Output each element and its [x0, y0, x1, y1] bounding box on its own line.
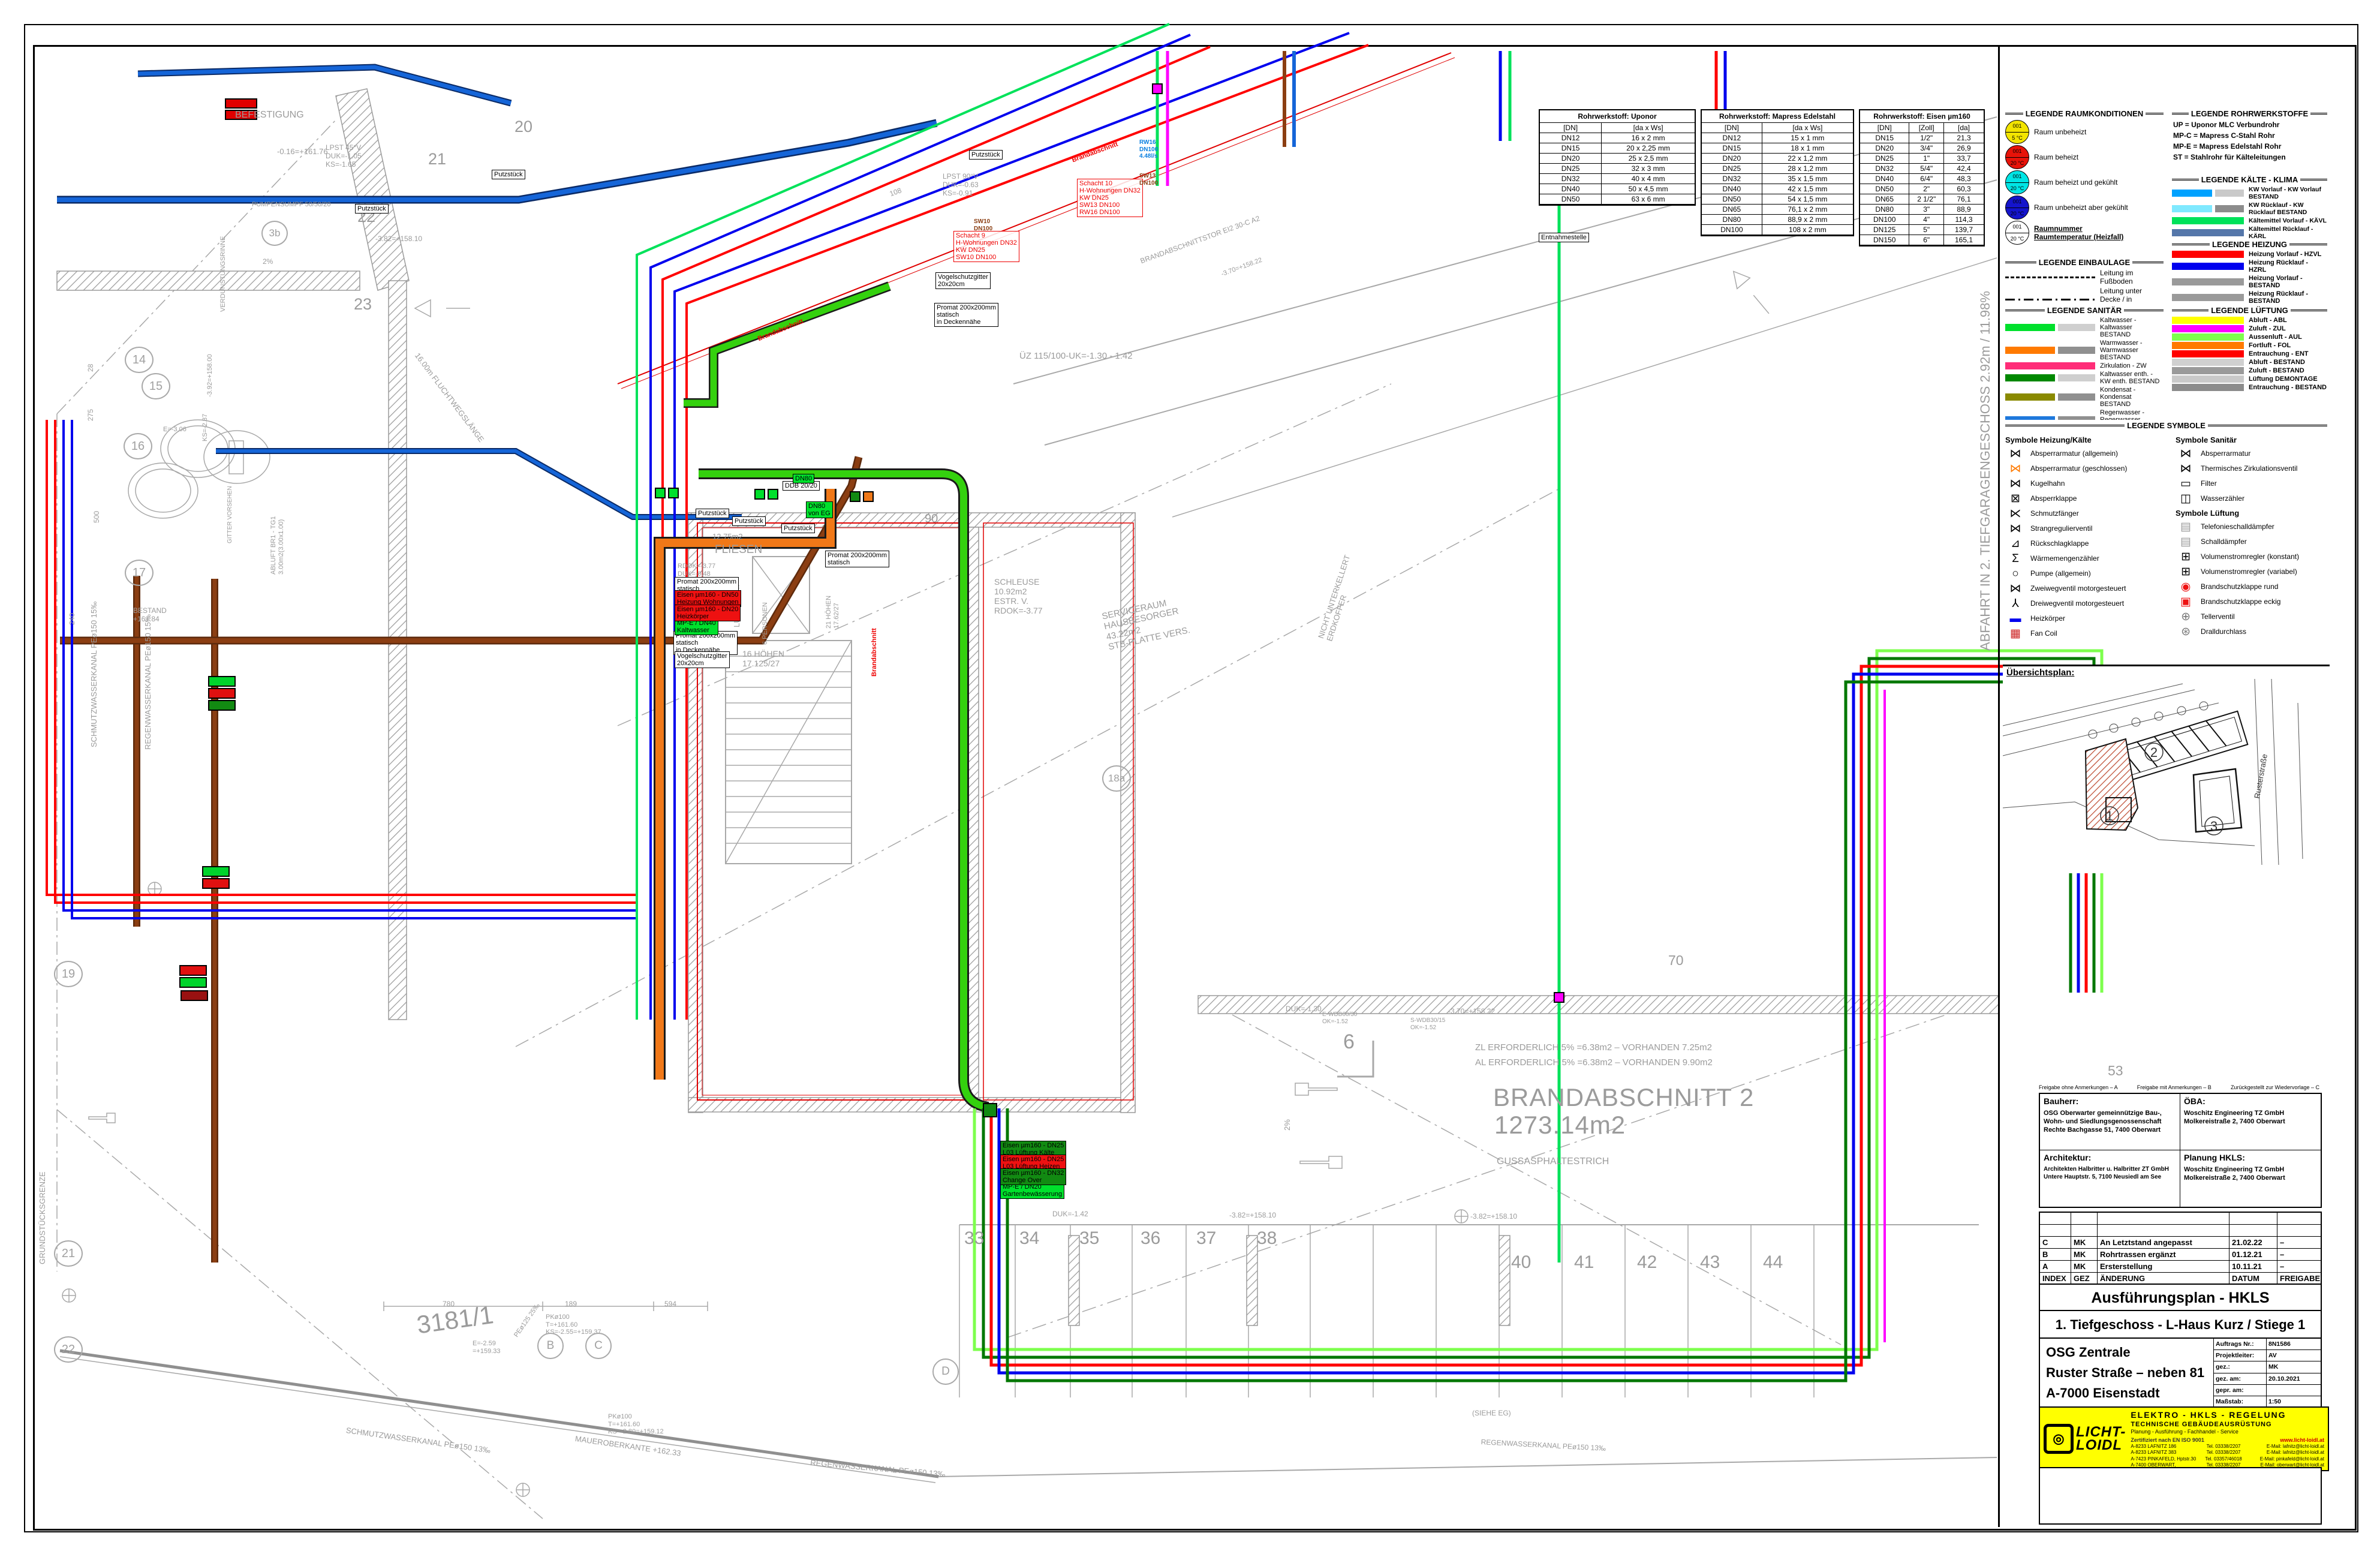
table-row: DN3235 x 1,5 mm — [1702, 174, 1853, 184]
grid-bubble-14: 14 — [125, 347, 154, 373]
col-da: [da] — [1944, 123, 1984, 133]
col-da: [da x Ws] — [1762, 123, 1853, 133]
parties-block: Bauherr:OSG Oberwarter gemeinnützige Bau… — [2039, 1093, 2322, 1208]
legend-header: LEGENDE SANITÄR — [2003, 306, 2166, 315]
symbol-icon: ⊿ — [2006, 537, 2024, 550]
grid-bubble-19: 19 — [54, 961, 83, 987]
table-row: DN2025 x 2,5 mm — [1540, 154, 1695, 164]
table-row: DN3240 x 4 mm — [1540, 174, 1695, 184]
symbol-item: ⊠Absperrklappe — [2006, 492, 2164, 505]
site-map: 1 2 3 Rusterstraße — [2003, 679, 2330, 865]
legend-item: Fortluft - FOL — [2172, 342, 2327, 349]
dim-594: 594 — [664, 1300, 676, 1309]
label-gitter: GITTER VORSEHEN — [227, 486, 234, 543]
symbol-icon: ◫ — [2177, 492, 2195, 505]
label-bestand: BESTAND +161.84 — [133, 607, 167, 624]
label-abfahrt: ABFAHRT IN 2. TIEFGARAGENGESCHOSS 2.92m … — [1978, 291, 1993, 651]
table-title: Rohrwerkstoff: Uponor — [1540, 110, 1695, 123]
legend-header: LEGENDE LÜFTUNG — [2170, 306, 2330, 315]
symbol-item: ▤Telefonieschalldämpfer — [2177, 520, 2326, 533]
dim-275: 275 — [87, 409, 95, 421]
symbol-icon: ⊞ — [2177, 550, 2195, 563]
symbol-icon: ▤ — [2177, 535, 2195, 548]
legend-item: Aussenluft - AUL — [2172, 333, 2327, 341]
legend-heizung: LEGENDE HEIZUNG Heizung Vorlauf - HZVL H… — [2170, 239, 2330, 314]
symbol-item: ▬Heizkörper — [2006, 612, 2164, 625]
putzstueck-box: Putzstück — [969, 150, 1003, 160]
symbol-item: ▭Filter — [2177, 477, 2326, 490]
putzstueck-box: Putzstück — [696, 509, 729, 518]
legend-item: 00120 °C Raum beheizt — [2005, 145, 2164, 169]
label-brandabschnitt: BRANDABSCHNITT 2 — [1493, 1083, 1754, 1112]
grid-23: 23 — [354, 295, 372, 314]
label-zl: ZL ERFORDERLICH 5% =6.38m2 – VORHANDEN 7… — [1475, 1042, 1712, 1053]
table-row: DN652 1/2"76,1 — [1860, 194, 1984, 205]
room-number-icon: 00120 °C — [2005, 221, 2029, 245]
symbol-item: ⋉Schmutzfänger — [2006, 507, 2164, 520]
map-building-2: 2 — [2150, 745, 2158, 760]
table-row: DN1506"165,1 — [1860, 235, 1984, 245]
room-condition-icon: 00120 °C — [2005, 170, 2029, 194]
label-uz: ÜZ 115/100-UK=-1.30 - 1.42 — [1019, 351, 1133, 361]
legend-item: Abluft - ABL — [2172, 317, 2327, 324]
label-swdb: S-WDB30/15 OK=-1.52 — [1410, 1017, 1445, 1031]
symbol-icon: ▬ — [2006, 612, 2024, 625]
symbol-icon: ⋈ — [2006, 522, 2024, 535]
revision-row: CMKAn Letztstand angepasst21.02.22– — [2040, 1237, 2321, 1249]
table-row: DN1255"139,7 — [1860, 225, 1984, 235]
dim-28: 28 — [87, 364, 95, 372]
legend-item: UP = Uponor MLC Verbundrohr — [2173, 121, 2326, 129]
symbol-icon: ⋈ — [2006, 447, 2024, 460]
table-title: Rohrwerkstoff: Eisen µm160 — [1860, 110, 1984, 123]
table-uponor: Rohrwerkstoff: Uponor [DN][da x Ws] DN12… — [1539, 109, 1696, 206]
label-fliesen: FLIESEN — [715, 543, 762, 557]
legend-header: LEGENDE RAUMKONDITIONEN — [2003, 109, 2166, 118]
label-lpst45: LPST 45°V DUK=-1.05 KS=-1.65 — [326, 144, 362, 169]
stall-42: 42 — [1637, 1252, 1657, 1273]
company-logo: ◎ LICHT-LOIDL — [2044, 1410, 2126, 1468]
label-level: -3.70=+158.22 — [1448, 1008, 1495, 1016]
grid-20: 20 — [514, 118, 532, 136]
room-condition-icon: 0015 °C — [2005, 120, 2029, 144]
table-row: DN8088,9 x 2 mm — [1702, 215, 1853, 225]
company-tel: Tel. 03357/46018 — [2197, 1456, 2250, 1462]
symbole-heizung-kaelte: Symbole Heizung/Kälte ⋈Absperrarmatur (a… — [2003, 432, 2167, 642]
legend-item: Zirkulation - ZW — [2005, 362, 2164, 369]
legend-item: Leitung im Fußboden — [2005, 269, 2164, 285]
symbol-icon: ⅄ — [2006, 597, 2024, 610]
project-field-row: gez. am:20.10.2021 — [2214, 1373, 2321, 1385]
legend-item: Heizung Vorlauf - HZVL — [2172, 251, 2327, 258]
grid-bubble-21: 21 — [54, 1240, 83, 1267]
legend-item: Entrauchung - ENT — [2172, 350, 2327, 357]
symbol-icon: ◉ — [2177, 580, 2195, 593]
legend-item: Kondensat - Kondensat BESTAND — [2005, 386, 2164, 408]
table-row: DN6576,1 x 2 mm — [1702, 205, 1853, 215]
project-field-row: Projektleiter:AV — [2214, 1350, 2321, 1361]
promat-box: Promat 200x200mm statisch — [825, 551, 889, 567]
table-row: DN4042 x 1,5 mm — [1702, 184, 1853, 194]
table-row: DN2528 x 1,2 mm — [1702, 164, 1853, 174]
putzstueck-box: Putzstück — [781, 524, 815, 533]
symbol-icon: ⊛ — [2177, 625, 2195, 638]
heizkoerper-dn20-box: Eisen µm160 - DN20 Heizkörper — [675, 605, 741, 621]
symbol-icon: Σ — [2006, 552, 2024, 565]
legend-item: Lüftung DEMONTAGE — [2172, 375, 2327, 383]
dim-500: 500 — [93, 511, 101, 523]
grid-53: 53 — [2108, 1063, 2123, 1078]
stall-38: 38 — [1257, 1228, 1277, 1249]
col-dn: [DN] — [1702, 123, 1762, 133]
symbol-icon: ○ — [2006, 567, 2024, 580]
company-line3: Planung - Ausführung - Fachhandel - Serv… — [2131, 1429, 2324, 1435]
symbol-icon: ▦ — [2006, 627, 2024, 640]
legend-header: LEGENDE KÄLTE - KLIMA — [2170, 175, 2330, 184]
schacht9-box: Schacht 9 H-Wohnungen DN32 KW DN25 SW10 … — [953, 231, 1019, 262]
table-row: DN5054 x 1,5 mm — [1702, 194, 1853, 205]
col-zoll: [Zoll] — [1909, 123, 1944, 133]
revision-row: INDEXGEZÄNDERUNGDATUMFREIGABE — [2040, 1273, 2321, 1285]
uebersichtsplan-title: Übersichtsplan: — [2006, 668, 2326, 678]
architektur-cell: Architektur:Architekten Halbritter u. Ha… — [2040, 1150, 2180, 1207]
symbol-icon: ⋈ — [2177, 462, 2195, 475]
project-field-row: gepr. am: — [2214, 1385, 2321, 1396]
symbol-item: ⋈Strangregulierventil — [2006, 522, 2164, 535]
label-personen: 6 PERSONEN — [762, 602, 769, 645]
legend-item: Heizung Rücklauf - HZRL — [2172, 259, 2327, 273]
plot-info-box — [2039, 1467, 2322, 1525]
rw16-label: RW16 DN100 4.48l/s — [1139, 139, 1158, 160]
logo-ring-icon: ◎ — [2044, 1424, 2074, 1454]
label-lpst90: LPST 90°V DUK=-0.63 KS=-0.91 — [943, 173, 979, 197]
table-row: DN502"60,3 — [1860, 184, 1984, 194]
company-cert: Zertifiziert nach EN ISO 9001 — [2131, 1437, 2204, 1444]
putzstueck-box: Putzstück — [492, 170, 525, 179]
bauherr-cell: Bauherr:OSG Oberwarter gemeinnützige Bau… — [2040, 1094, 2180, 1150]
dim-2pct: 2% — [263, 258, 273, 266]
symbol-item: ΣWärmemengenzähler — [2006, 552, 2164, 565]
company-address: A-7423 PINKAFELD, Hptstr.30 — [2131, 1456, 2197, 1462]
label-e306: E=-3.06 — [163, 426, 186, 434]
label-level: -0.16=+161.76 — [277, 148, 328, 157]
legend-item: Kältemittel Rücklauf - KÄRL — [2172, 226, 2327, 240]
promat-deck-box: Promat 200x200mm statisch in Deckennähe — [934, 303, 998, 327]
label-area: 12.75m2 — [712, 533, 743, 542]
legend-rohrwerkstoffe: LEGENDE ROHRWERKSTOFFE UP = Uponor MLC V… — [2170, 108, 2330, 164]
label-e259: E=-2.59 =+159.33 — [473, 1340, 501, 1355]
symbol-item: ⊿Rückschlagklappe — [2006, 537, 2164, 550]
grid-bubble-C: C — [585, 1333, 612, 1359]
legend-header: LEGENDE SYMBOLE — [2003, 421, 2330, 430]
table-row: DN251"33,7 — [1860, 154, 1984, 164]
company-tel: Tel. 03338/2207 — [2197, 1450, 2250, 1456]
table-row: DN151/2"21,3 — [1860, 133, 1984, 143]
table-row: DN406/4"48,3 — [1860, 174, 1984, 184]
grid-bubble-B: B — [537, 1333, 564, 1359]
symbol-item: ▤Schalldämpfer — [2177, 535, 2326, 548]
legend-item: Zuluft - ZUL — [2172, 325, 2327, 332]
table-row: DN5063 x 6 mm — [1540, 194, 1695, 205]
freigabe-c: Zurückgestellt zur Wiedervorlage – C — [2231, 1084, 2319, 1090]
table-row: DN100108 x 2 mm — [1702, 225, 1853, 235]
company-email: E-Mail: lafnitz@licht-loidl.at — [2250, 1444, 2324, 1450]
legend-item: KW Rücklauf - KW Rücklauf BESTAND — [2172, 202, 2327, 216]
freigabe-header: Freigabe ohne Anmerkungen – A Freigabe m… — [2039, 1084, 2319, 1090]
symbols-subtitle: Symbole Lüftung — [2176, 509, 2327, 518]
label-befestigung: BEFESTIGUNG — [235, 110, 304, 121]
label-duk130: DUK=-1.30 — [1286, 1005, 1322, 1014]
symbol-icon: ▣ — [2177, 595, 2195, 608]
revision-row — [2040, 1213, 2321, 1225]
fitting-markers — [180, 84, 2098, 1117]
symbol-item: ⊞Volumenstromregler (variabel) — [2177, 565, 2326, 578]
legend-item: Heizung Vorlauf - BESTAND — [2172, 275, 2327, 289]
symbol-item: ⊛Dralldurchlass — [2177, 625, 2326, 638]
table-eisen: Rohrwerkstoff: Eisen µm160 [DN][Zoll][da… — [1859, 109, 1985, 247]
freigabe-b: Freigabe mit Anmerkungen – B — [2137, 1084, 2211, 1090]
symbol-item: ▣Brandschutzklappe eckig — [2177, 595, 2326, 608]
company-block: ◎ LICHT-LOIDL ELEKTRO - HKLS - REGELUNG … — [2039, 1406, 2329, 1471]
company-email: E-Mail: pinkafeld@licht-loidl.at — [2250, 1456, 2324, 1462]
legend-header: LEGENDE ROHRWERKSTOFFE — [2170, 109, 2330, 118]
oeba-cell: ÖBA:Woschitz Engineering TZ GmbH Molkere… — [2180, 1094, 2321, 1150]
legend-item: 00120 °C Raum unbeheizt aber gekühlt — [2005, 196, 2164, 220]
stall-36: 36 — [1141, 1228, 1160, 1249]
legend-item: 0015 °C Raum unbeheizt — [2005, 120, 2164, 144]
stall-33: 33 — [964, 1228, 984, 1249]
table-row: DN203/4"26,9 — [1860, 143, 1984, 154]
map-building-1: 1 — [2106, 808, 2113, 823]
grid-bubble-15: 15 — [142, 373, 170, 399]
dn80-von-eg-box: DN80 von EG — [806, 501, 833, 518]
legend-item: Kaltwasser - Kaltwasser BESTAND — [2005, 317, 2164, 338]
company-address: A-8233 LAFNITZ 383 — [2131, 1450, 2197, 1456]
legend-item: Kaltwasser enth. - KW enth. BESTAND — [2005, 371, 2164, 385]
dim-240: 240 — [68, 613, 77, 625]
symbol-icon: ⊞ — [2177, 565, 2195, 578]
table-row: DN1216 x 2 mm — [1540, 133, 1695, 143]
legend-item: Zuluft - BESTAND — [2172, 367, 2327, 374]
symbole-sanitaer-lueftung: Symbole Sanitär ⋈Absperrarmatur ⋈Thermis… — [2173, 432, 2330, 642]
table-row: DN1004"114,3 — [1860, 215, 1984, 225]
symbol-item: ⊕Tellerventil — [2177, 610, 2326, 623]
col-dn: [DN] — [1540, 123, 1602, 133]
legend-item: Warmwasser - Warmwasser BESTAND — [2005, 339, 2164, 361]
sw10-label: SW10 DN100 — [974, 218, 992, 232]
legend-item: MP-E = Mapress Edelstahl Rohr — [2173, 142, 2326, 151]
legend-item: Kältemittel Vorlauf - KÄVL — [2172, 217, 2327, 224]
revision-table: CMKAn Letztstand angepasst21.02.22– BMKR… — [2039, 1212, 2322, 1286]
symbol-icon: ⊠ — [2006, 492, 2024, 505]
map-building-3: 3 — [2210, 819, 2217, 834]
legend-header: LEGENDE EINBAULAGE — [2003, 258, 2166, 267]
company-tel: Tel. 03338/2207 — [2197, 1444, 2250, 1450]
grid-21: 21 — [428, 150, 446, 169]
dim-2pct: 2% — [1283, 1119, 1292, 1131]
legend-item: ST = Stahlrohr für Kälteleitungen — [2173, 153, 2326, 161]
legend-raumkonditionen: LEGENDE RAUMKONDITIONEN 0015 °C Raum unb… — [2003, 108, 2166, 246]
symbol-icon: ⊕ — [2177, 610, 2195, 623]
putzstueck-box: Putzstück — [732, 516, 766, 526]
project-field-row: gez.:MK — [2214, 1361, 2321, 1373]
change-over-box: Eisen µm160 - DN32 Change Over — [1000, 1168, 1066, 1185]
grid-bubble-22: 22 — [54, 1336, 83, 1363]
symbol-item: ⅄Dreiwegventil motorgesteuert — [2006, 597, 2164, 610]
grid-70: 70 — [1668, 952, 1684, 968]
label-regenwasserkanal: REGENWASSERKANAL PEø150 15‰ — [144, 614, 153, 750]
legend-callout: 00120 °C RaumnummerRaumtemperatur (Heizf… — [2005, 221, 2164, 245]
label-level: -3.82=+158.10 — [1229, 1212, 1276, 1220]
sw13-label: SW13 DN100 — [1139, 173, 1158, 187]
label-duk142: DUK=-1.42 — [1052, 1210, 1088, 1219]
label-siehe-eg: (SIEHE EG) — [1472, 1409, 1511, 1418]
label-m392: -3.92=+158.00 — [206, 354, 214, 397]
freigabe-a: Freigabe ohne Anmerkungen – A — [2039, 1084, 2118, 1090]
label-gussasphalt: GUSSASPHALTESTRICH — [1497, 1156, 1609, 1167]
legend-item: KW Vorlauf - KW Vorlauf BESTAND — [2172, 186, 2327, 200]
revision-row: AMKErsterstellung10.11.21– — [2040, 1261, 2321, 1273]
vogelschutz-box: Vogelschutzgitter 20x20cm — [675, 651, 730, 668]
plan-type-band: Ausführungsplan - HKLS — [2039, 1284, 2322, 1312]
label-pumpensumpf: PUMPENSUMPF 50/50/20 — [252, 201, 330, 209]
symbol-icon: ⋈ — [2177, 447, 2195, 460]
label-schleuse: SCHLEUSE 10.92m2 ESTR. V. RDOK=-3.77 — [994, 577, 1043, 615]
legend-item: Heizung Rücklauf - BESTAND — [2172, 290, 2327, 305]
company-line2: TECHNISCHE GEBÄUDEAUSRÜSTUNG — [2131, 1421, 2324, 1429]
label-pk2: PKø100 T=+161.60 KS=-2.80=+159.12 — [608, 1413, 664, 1436]
symbol-item: ○Pumpe (allgemein) — [2006, 567, 2164, 580]
room-condition-icon: 00120 °C — [2005, 145, 2029, 169]
label-ks287: KS=-2.87 — [201, 414, 209, 441]
schacht10-box: Schacht 10 H-Wohnungen DN32 KW DN25 SW13… — [1077, 179, 1143, 217]
grid-bubble-17: 17 — [125, 560, 154, 586]
symbol-item: ◉Brandschutzklappe rund — [2177, 580, 2326, 593]
table-row: DN1518 x 1 mm — [1702, 143, 1853, 154]
planung-cell: Planung HKLS:Woschitz Engineering TZ Gmb… — [2180, 1150, 2321, 1207]
grid-bubble-16: 16 — [124, 433, 152, 459]
legend-header: LEGENDE HEIZUNG — [2170, 240, 2330, 249]
symbol-icon: ⋈ — [2006, 462, 2024, 475]
project-address: OSG Zentrale Ruster Straße – neben 81 A-… — [2040, 1339, 2213, 1408]
brandabschnitt-red-label: Brandabschnitt — [871, 628, 878, 677]
room-condition-icon: 00120 °C — [2005, 196, 2029, 220]
project-field-row: Auftrags Nr.:8N1586 — [2214, 1339, 2321, 1350]
entnahmestelle-box: Entnahmestelle — [1539, 233, 1589, 242]
label-schmutzwasserkanal: SCHMUTZWASSERKANAL PEø150 15‰ — [90, 602, 99, 747]
legend-divider — [1998, 45, 2000, 1527]
label-level: -3.82=+158.10 — [1470, 1213, 1517, 1221]
map-street-label: Rusterstraße — [2252, 753, 2269, 799]
table-row: DN1520 x 2,25 mm — [1540, 143, 1695, 154]
table-mapress: Rohrwerkstoff: Mapress Edelstahl [DN][da… — [1701, 109, 1854, 236]
symbol-item: ⋈Absperrarmatur (allgemein) — [2006, 447, 2164, 460]
label-hoehen16: 16 HÖHEN 17.125/27 — [742, 649, 784, 668]
stall-41: 41 — [1574, 1252, 1594, 1273]
symbol-icon: ⋈ — [2006, 582, 2024, 595]
stall-37: 37 — [1196, 1228, 1216, 1249]
label-brandabschnitt-area: 1273.14m2 — [1494, 1111, 1626, 1140]
table-row: DN2532 x 3 mm — [1540, 164, 1695, 174]
table-row: DN803"88,9 — [1860, 205, 1984, 215]
table-row: DN325/4"42,4 — [1860, 164, 1984, 174]
vogelschutz-box: Vogelschutzgitter 20x20cm — [935, 272, 991, 289]
legend-lueftung: LEGENDE LÜFTUNG Abluft - ABL Zuluft - ZU… — [2170, 305, 2330, 392]
table-row: DN4050 x 4,5 mm — [1540, 184, 1695, 194]
symbol-item: ▦Fan Coil — [2006, 627, 2164, 640]
hatched-walls — [57, 89, 1999, 1325]
dim-780: 780 — [443, 1300, 455, 1309]
label-ewdb: E-WDB60/30 OK=-1.52 — [1322, 1011, 1357, 1025]
col-dn: [DN] — [1860, 123, 1909, 133]
uebersichtsplan: Übersichtsplan: — [2003, 665, 2330, 873]
symbol-item: ◫Wasserzähler — [2177, 492, 2326, 505]
label-al: AL ERFORDERLICH 5% =6.38m2 – VORHANDEN 9… — [1475, 1057, 1713, 1068]
legend-item: 00120 °C Raum beheizt und gekühlt — [2005, 170, 2164, 194]
grid-6: 6 — [1343, 1030, 1355, 1054]
symbol-icon: ▤ — [2177, 520, 2195, 533]
symbol-icon: ⋈ — [2006, 477, 2024, 490]
symbols-subtitle: Symbole Sanitär — [2176, 435, 2327, 444]
stall-40: 40 — [1511, 1252, 1531, 1273]
label-hoehen21: 21 HÖHEN 17.62/27 — [825, 596, 840, 629]
legend-item: Abluft - BESTAND — [2172, 359, 2327, 366]
label-rdok: RDOK=-3.77 DUK=-0.48 — [678, 563, 715, 578]
company-line1: ELEKTRO - HKLS - REGELUNG — [2131, 1410, 2324, 1421]
symbol-item: ⋈Zweiwegventil motorgesteuert — [2006, 582, 2164, 595]
stall-43: 43 — [1700, 1252, 1720, 1273]
legend-symbole: LEGENDE SYMBOLE Symbole Heizung/Kälte ⋈A… — [2003, 420, 2330, 642]
table-row: DN1215 x 1 mm — [1702, 133, 1853, 143]
label-abluft-br1: ABLUFT BR1 - TG1 3.00m2(3.00x1.00) — [270, 516, 285, 575]
symbol-item: ⋈Kugelhahn — [2006, 477, 2164, 490]
table-row: DN2022 x 1,2 mm — [1702, 154, 1853, 164]
revision-row: BMKRohrtrassen ergänzt01.12.21– — [2040, 1249, 2321, 1261]
symbol-item: ⋈Absperrarmatur — [2177, 447, 2326, 460]
symbol-item: ⋈Thermisches Zirkulationsventil — [2177, 462, 2326, 475]
putzstueck-box: Putzstück — [355, 204, 389, 214]
structure-lines — [57, 117, 1997, 1519]
dim-189: 189 — [565, 1300, 577, 1309]
symbol-icon: ⋉ — [2006, 507, 2024, 520]
grid-bubble-18a: 18a — [1102, 765, 1131, 792]
grid-bubble-3b: 3b — [261, 221, 288, 246]
stall-34: 34 — [1019, 1228, 1039, 1249]
dn80-box: DN80 — [793, 474, 814, 483]
project-fields: Auftrags Nr.:8N1586 Projektleiter:AV gez… — [2213, 1339, 2321, 1408]
legend-item: Entrauchung - BESTAND — [2172, 384, 2327, 391]
drawing-sheet: BEFESTIGUNG -0.16=+161.76 LPST 45°V DUK=… — [0, 0, 2380, 1554]
stall-35: 35 — [1079, 1228, 1099, 1249]
label-verdunstungsrinne: VERDUNSTUNGSRINNE — [219, 236, 227, 312]
project-block: OSG Zentrale Ruster Straße – neben 81 A-… — [2039, 1337, 2322, 1409]
grid-bubble-D: D — [932, 1358, 959, 1385]
company-address: A-8233 LAFNITZ 186 — [2131, 1444, 2197, 1450]
revision-row — [2040, 1225, 2321, 1237]
label-level: -3.82=+158.10 — [375, 235, 422, 244]
col-da: [da x Ws] — [1602, 123, 1695, 133]
plan-title-band: 1. Tiefgeschoss - L-Haus Kurz / Stiege 1 — [2039, 1310, 2322, 1340]
symbol-icon: ▭ — [2177, 477, 2195, 490]
symbol-item: ⊞Volumenstromregler (konstant) — [2177, 550, 2326, 563]
symbols-subtitle: Symbole Heizung/Kälte — [2005, 435, 2165, 444]
symbol-item: ⋈Absperrarmatur (geschlossen) — [2006, 462, 2164, 475]
stall-44: 44 — [1763, 1252, 1783, 1273]
grid-90: 90 — [925, 512, 938, 526]
legend-item: MP-C = Mapress C-Stahl Rohr — [2173, 131, 2326, 140]
company-web: www.licht-loidl.at — [2280, 1437, 2324, 1444]
label-grundstuecksgrenze: GRUNDSTÜCKSGRENZE — [38, 1171, 47, 1264]
